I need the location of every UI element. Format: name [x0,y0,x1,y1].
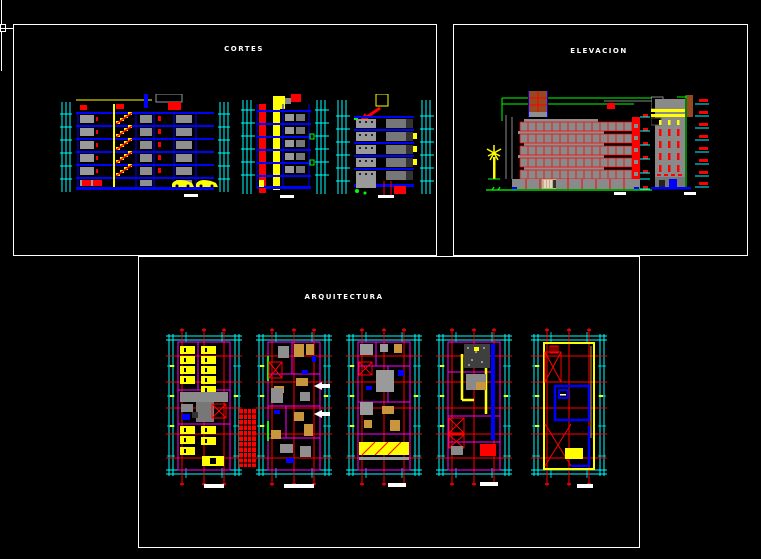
drawing-section-2 [239,94,334,206]
drawing-plan-5 [531,326,607,496]
scale-bar [480,482,498,486]
drawing-section-3 [334,94,436,206]
sheet-title-elevacion: ELEVACION [554,47,644,55]
cad-layout-canvas: CORTES [0,0,761,559]
left-edge-line [1,0,2,71]
sheet-title-cortes: CORTES [199,45,289,53]
stair-arrows [116,113,132,176]
stair-x [269,362,282,378]
level-markers [640,114,650,189]
window-grid [520,122,632,179]
drawing-side-elevation [651,89,715,206]
drawing-plan-4 [436,326,512,496]
sheet-title-arquitectura: ARQUITECTURA [299,293,389,301]
palm-tree-icon [487,145,501,179]
scale-bar [184,194,198,197]
scale-bar [684,192,696,195]
stair-x [359,362,372,375]
drawing-plan-1 [166,326,242,496]
entry-arrows [314,382,330,418]
drawing-plan-2 [256,326,332,496]
scale-bar [284,484,314,488]
ground-floor [512,179,640,190]
scale-bar [280,195,294,198]
legend-grid [239,409,256,467]
drawing-plan-3 [346,326,422,496]
sheet-elevacion: ELEVACION [453,24,748,256]
scale-bar [378,195,394,198]
scale-bar [614,192,626,195]
drawing-front-elevation [484,91,654,206]
stair-x [449,418,464,448]
sheet-cortes: CORTES [13,24,437,256]
dimension-lines [336,100,434,194]
roof-box [529,91,548,117]
floor-slabs [76,112,214,190]
sheet-arquitectura: ARQUITECTURA [138,256,640,548]
scale-bar [577,484,593,488]
level-markers [695,99,709,187]
scale-bar [204,484,224,488]
drawing-section-1 [56,94,234,206]
scale-bar [388,483,406,487]
